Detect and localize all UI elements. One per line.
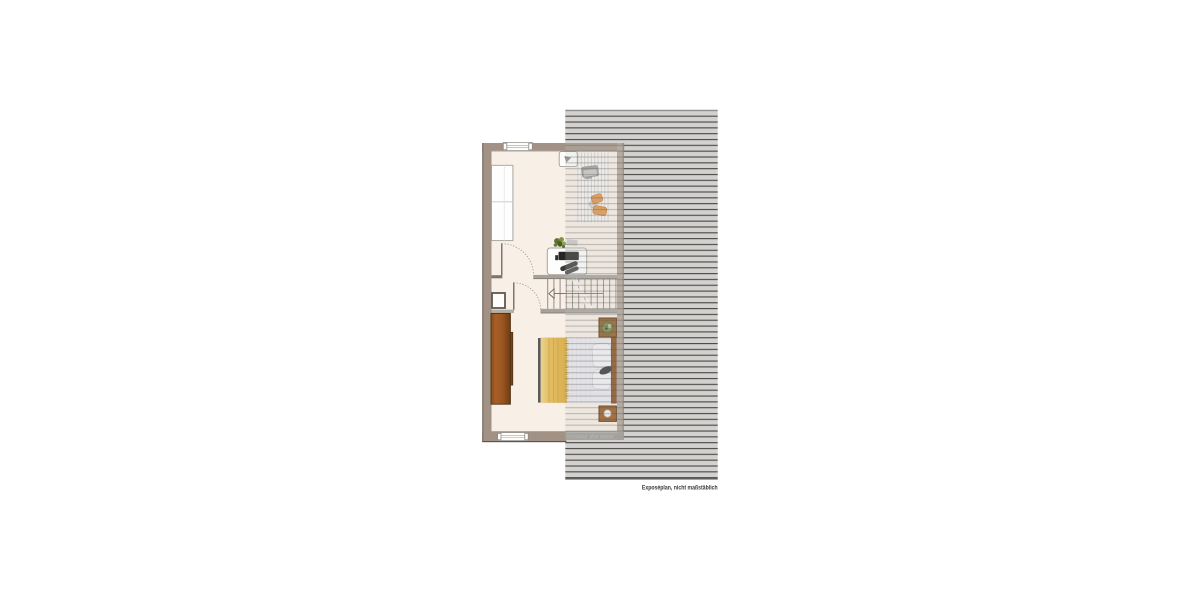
svg-text:Exposéplan, nicht maßstäblich: Exposéplan, nicht maßstäblich bbox=[642, 485, 718, 492]
svg-text:Grundriss: plan-xpress: Grundriss: plan-xpress bbox=[567, 434, 614, 439]
